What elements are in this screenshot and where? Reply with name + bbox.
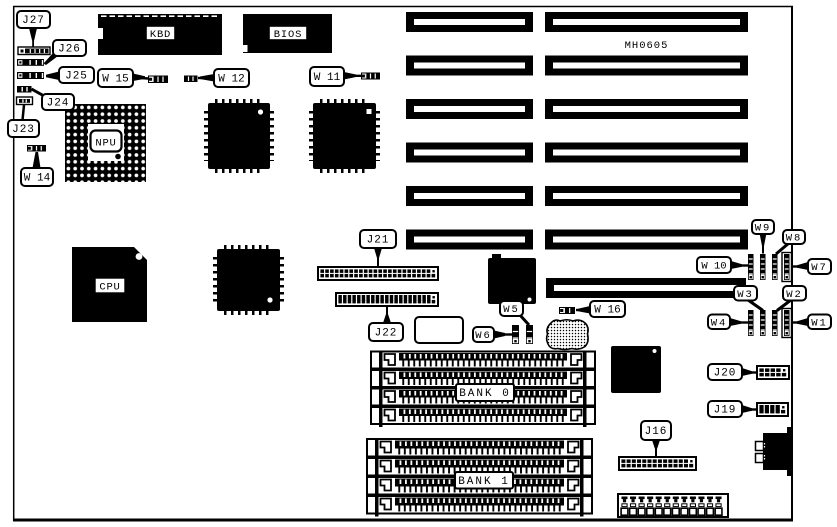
svg-text:W 16: W 16 (594, 305, 620, 317)
svg-text:W7: W7 (811, 262, 828, 274)
svg-text:W3: W3 (737, 289, 754, 301)
svg-text:W8: W8 (786, 233, 803, 245)
svg-text:W4: W4 (711, 317, 728, 329)
svg-text:BIOS: BIOS (274, 29, 302, 41)
svg-text:W 15: W 15 (102, 74, 128, 86)
svg-text:W9: W9 (755, 223, 772, 235)
svg-text:W5: W5 (503, 304, 520, 316)
svg-text:J19: J19 (714, 405, 737, 417)
svg-text:BANK 1: BANK 1 (458, 476, 510, 488)
svg-text:MH0605: MH0605 (625, 40, 669, 52)
svg-text:J26: J26 (58, 44, 81, 56)
svg-text:W 11: W 11 (314, 72, 341, 84)
svg-text:J20: J20 (714, 368, 737, 380)
svg-text:BANK 0: BANK 0 (459, 388, 511, 400)
svg-text:CPU: CPU (99, 282, 120, 294)
svg-text:J23: J23 (12, 124, 35, 136)
svg-text:J24: J24 (47, 98, 70, 110)
svg-text:W6: W6 (475, 330, 492, 342)
svg-text:NPU: NPU (95, 138, 116, 150)
svg-text:KBD: KBD (150, 29, 171, 41)
svg-text:J16: J16 (645, 426, 668, 438)
svg-text:J27: J27 (22, 15, 45, 27)
svg-text:W 10: W 10 (701, 261, 726, 273)
svg-text:W 14: W 14 (24, 173, 51, 185)
svg-text:J25: J25 (65, 71, 88, 83)
svg-text:J22: J22 (375, 328, 398, 340)
svg-text:W1: W1 (811, 317, 828, 329)
svg-text:W2: W2 (786, 289, 803, 301)
svg-text:W 12: W 12 (218, 74, 244, 86)
svg-text:J21: J21 (367, 235, 390, 247)
